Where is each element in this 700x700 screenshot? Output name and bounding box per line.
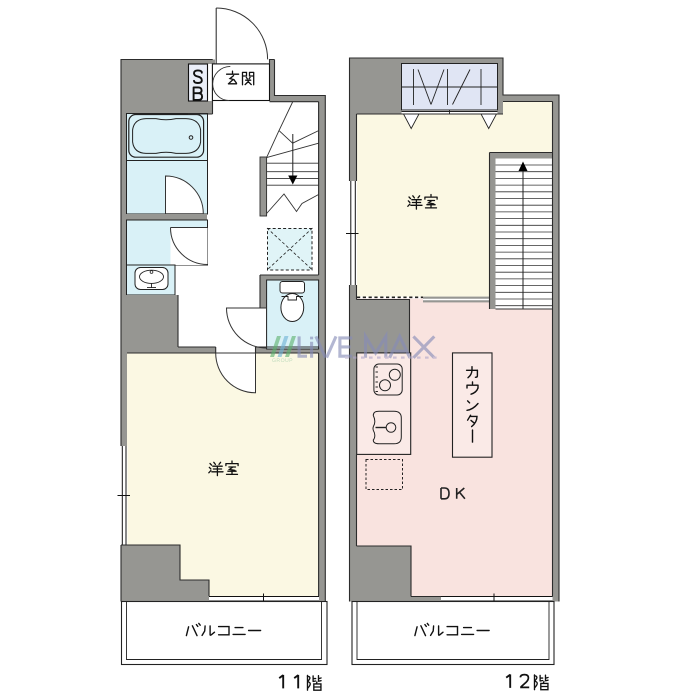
svg-text:GROUP: GROUP [272,358,293,364]
